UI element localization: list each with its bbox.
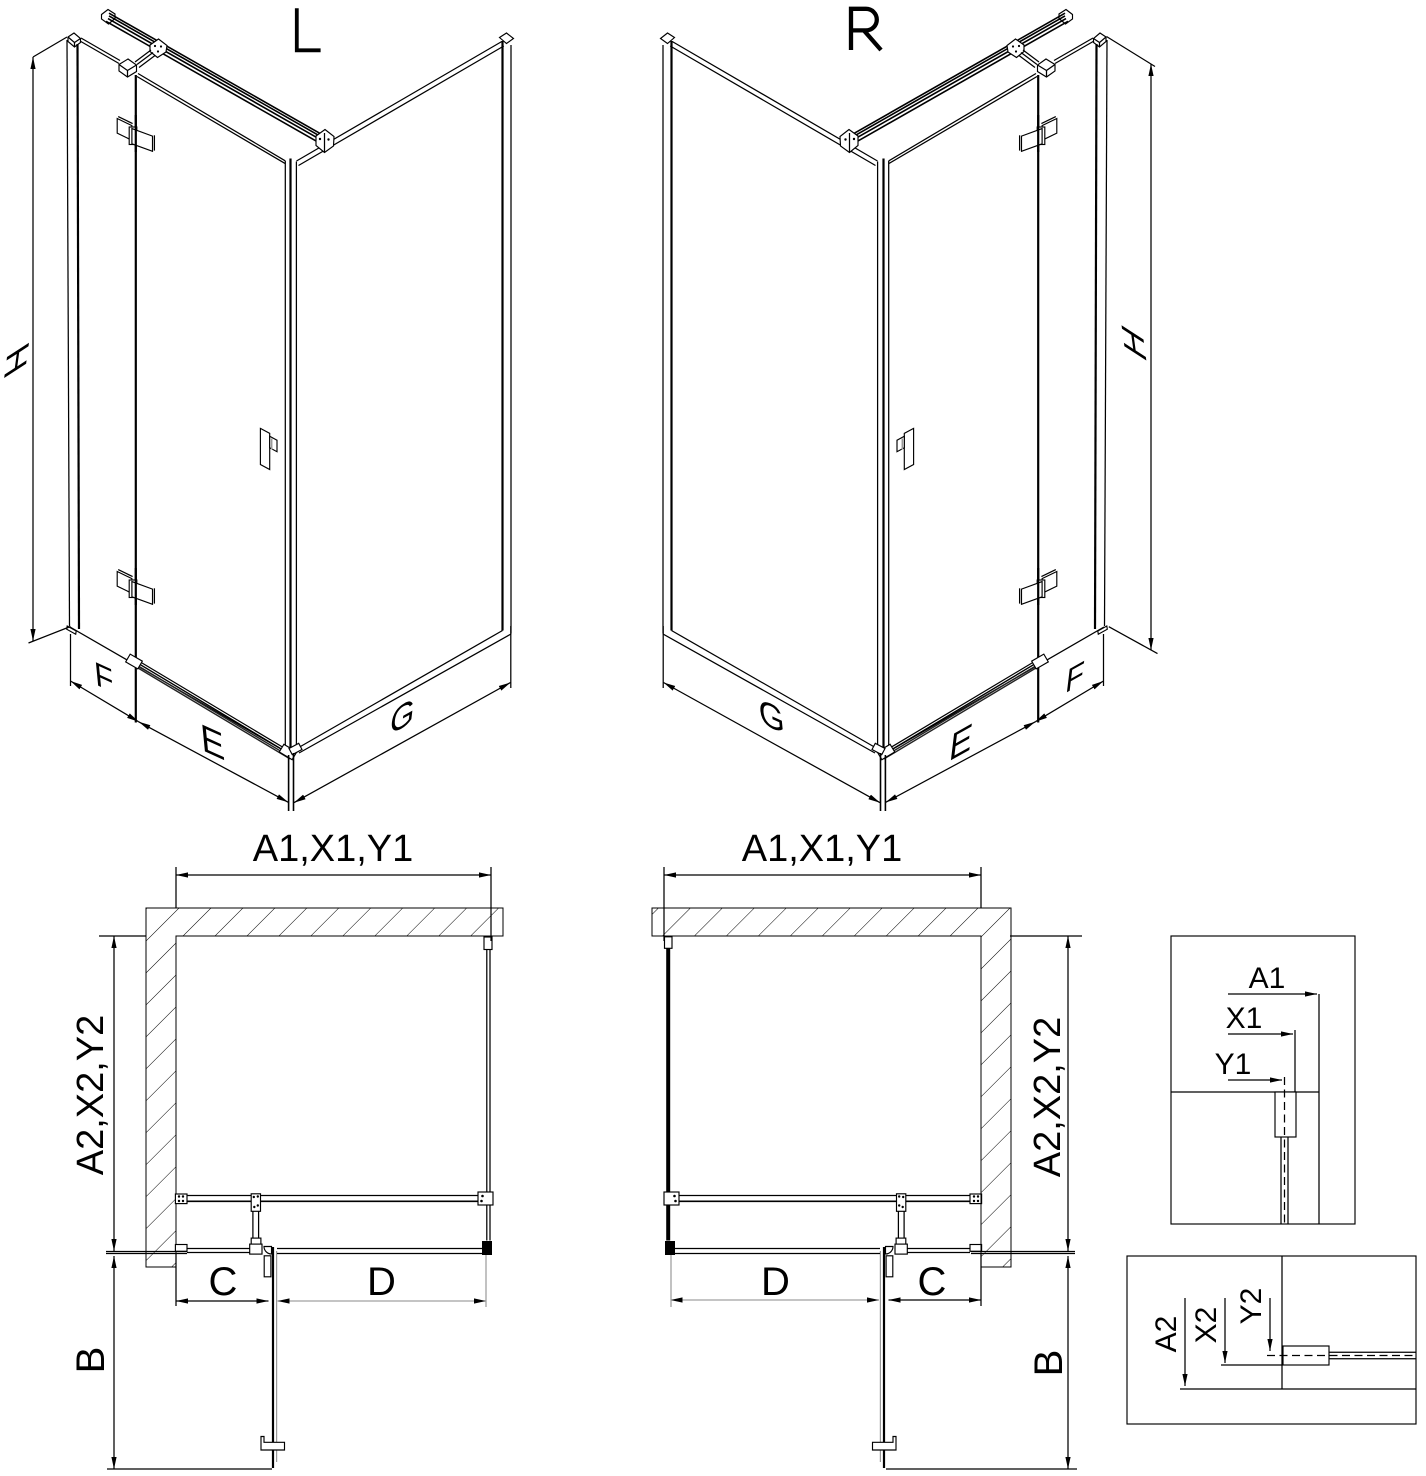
svg-text:Y2: Y2 — [1235, 1288, 1268, 1325]
svg-text:A1,X1,Y1: A1,X1,Y1 — [253, 828, 414, 870]
svg-text:G: G — [757, 690, 786, 742]
svg-text:C: C — [918, 1260, 947, 1304]
svg-text:Y1: Y1 — [1215, 1048, 1252, 1081]
svg-text:H: H — [0, 336, 35, 386]
svg-text:A1,X1,Y1: A1,X1,Y1 — [742, 828, 903, 870]
svg-text:A2: A2 — [1150, 1316, 1183, 1353]
svg-text:A1: A1 — [1249, 962, 1286, 995]
svg-text:E: E — [199, 716, 227, 770]
svg-text:F: F — [93, 654, 116, 700]
svg-text:A2,X2,Y2: A2,X2,Y2 — [70, 1015, 112, 1176]
svg-text:E: E — [947, 715, 975, 771]
svg-text:A2,X2,Y2: A2,X2,Y2 — [1027, 1017, 1069, 1178]
svg-text:C: C — [209, 1260, 238, 1304]
svg-text:H: H — [1115, 319, 1154, 369]
svg-text:B: B — [69, 1347, 113, 1374]
svg-text:X1: X1 — [1226, 1002, 1263, 1035]
svg-text:G: G — [388, 689, 417, 744]
svg-text:X2: X2 — [1190, 1307, 1223, 1344]
svg-text:B: B — [1027, 1350, 1071, 1377]
svg-text:D: D — [761, 1260, 790, 1304]
svg-text:D: D — [367, 1260, 396, 1304]
svg-text:F: F — [1064, 653, 1087, 701]
